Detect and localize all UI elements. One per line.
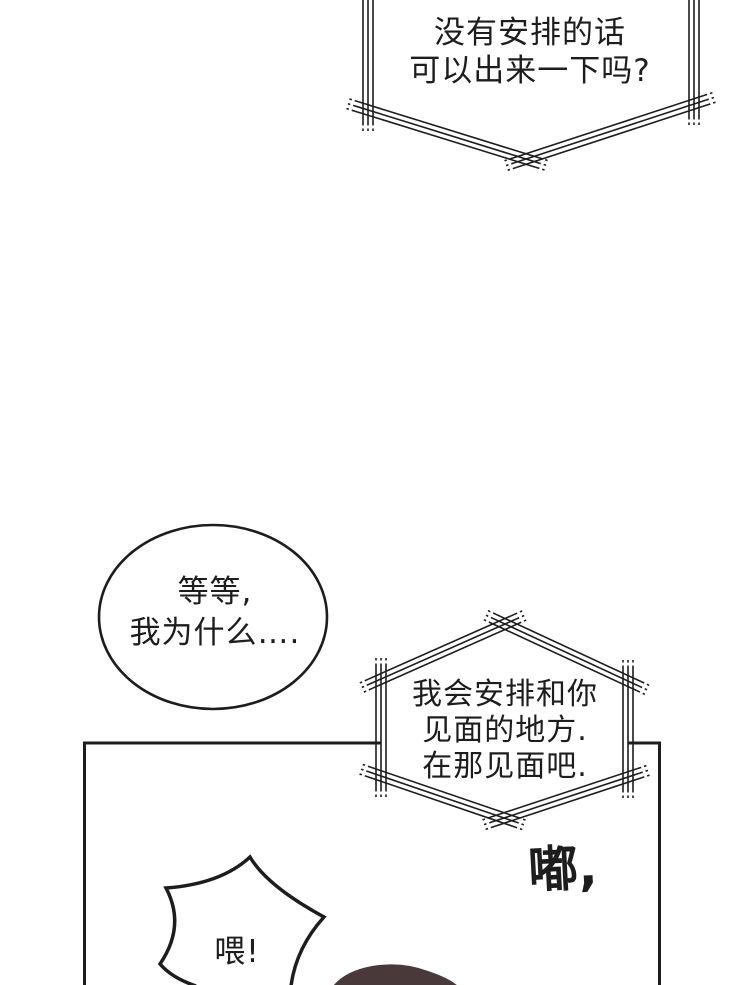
bubble-line (348, 104, 357, 107)
bubble-line (514, 827, 523, 830)
bubble-line (360, 774, 369, 777)
speech-line: 我为什么…. (93, 613, 337, 654)
speech-line: 没有安排的话 (355, 14, 705, 52)
bubble-line (508, 167, 517, 170)
speech-bubble-phone-top: 没有安排的话 可以出来一下吗? (355, 14, 705, 90)
bubble-line (514, 611, 522, 615)
bubble-line (355, 111, 536, 167)
speech-line: 我会安排和你 (380, 677, 630, 713)
sfx-ring-text: 嘟, (526, 825, 640, 903)
speech-line: 等等, (93, 572, 337, 613)
speech-bubble-phone-mid: 我会安排和你 见面的地方. 在那见面吧. (380, 677, 630, 785)
bubble-line (537, 163, 546, 166)
bubble-line (516, 105, 707, 167)
bubble-line (536, 167, 545, 170)
bubble-line (637, 691, 645, 695)
bubble-line (346, 109, 355, 112)
bubble-line (488, 611, 496, 615)
bubble-line (638, 766, 647, 769)
comic-page: 没有安排的话 可以出来一下吗? 等等, 我为什么…. 我会安排和你 见面的地方.… (0, 0, 740, 985)
bubble-line (641, 682, 649, 686)
speech-line: 在那见面吧. (380, 749, 630, 785)
bubble-line (515, 100, 706, 162)
bubble-line (705, 97, 714, 100)
character-hair (333, 964, 458, 985)
bubble-line (639, 770, 648, 773)
bubble-line (639, 686, 647, 690)
bubble-line (484, 620, 492, 624)
speech-line: 见面的地方. (380, 713, 630, 749)
bubble-line (484, 822, 493, 825)
bubble-line (707, 102, 716, 105)
speech-line: 可以出来一下吗? (355, 52, 705, 90)
bubble-line (360, 679, 368, 683)
bubble-line (349, 99, 358, 102)
bubble-line (361, 769, 370, 772)
bubble-line (358, 102, 539, 158)
speech-line: 喂! (184, 926, 290, 971)
bubble-line (357, 106, 538, 162)
bubble-line (506, 163, 515, 166)
bubble-line (641, 775, 650, 778)
bubble-line (518, 620, 526, 624)
bubble-line (486, 827, 495, 830)
bubble-line (362, 684, 370, 688)
bubble-line (704, 93, 713, 96)
bubble-line (515, 822, 524, 825)
bubble-line (516, 615, 524, 619)
speech-bubble-oval: 等等, 我为什么…. (93, 572, 337, 654)
bubble-line (363, 764, 372, 767)
bubble-line (513, 96, 704, 158)
bubble-line (486, 615, 494, 619)
bubble-line (364, 688, 372, 692)
speech-bubble-burst: 喂! (184, 926, 290, 971)
